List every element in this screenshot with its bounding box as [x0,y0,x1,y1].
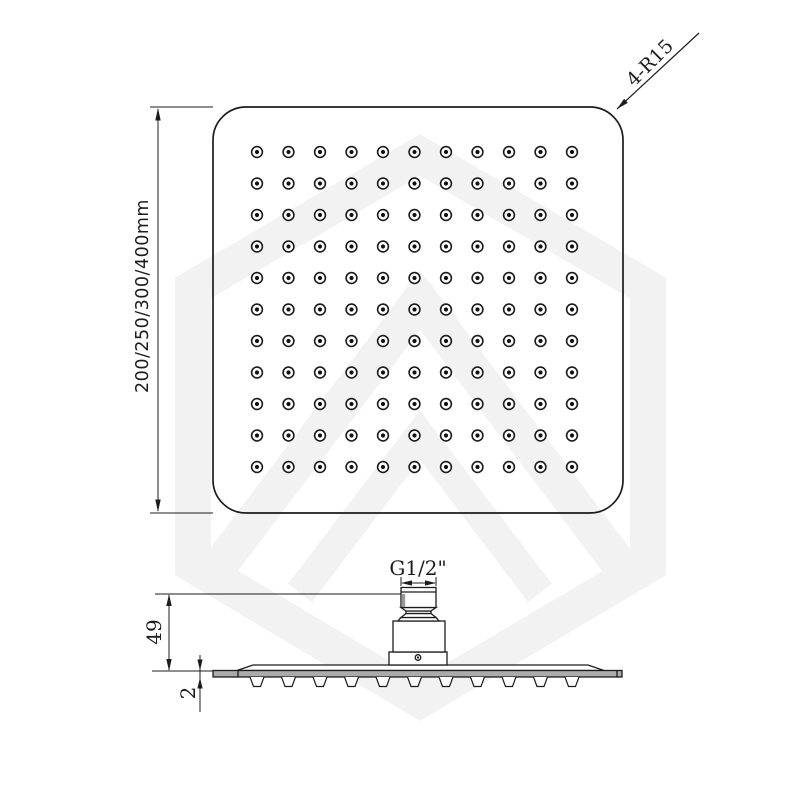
nozzle-dot [349,307,353,311]
nozzle-dot [318,276,322,280]
nozzle-dot [381,402,385,406]
nozzle-dot [255,465,259,469]
nozzle-dot [538,276,542,280]
nozzle-dot [349,181,353,185]
arrowhead-down-icon [166,659,171,671]
nozzle-dot [381,370,385,374]
nozzle-tips [250,677,579,687]
nozzle-dot [318,181,322,185]
nozzle-dot [475,244,479,248]
nozzle-tip [313,677,327,687]
thread-shading [402,594,405,607]
nozzle-dot [475,307,479,311]
nozzle-dot [255,181,259,185]
thread-pipe [401,588,436,608]
nozzle-dot [444,244,448,248]
nozzle-dot [570,307,574,311]
nozzle-dot [286,150,290,154]
nozzle-dot [412,150,416,154]
nozzle-dot [349,402,353,406]
nozzle-dot [507,307,511,311]
corner-radius-label: 4-R15 [622,35,678,91]
nozzle-dot [381,276,385,280]
nozzle-dot [286,433,290,437]
nozzle-dot [286,307,290,311]
nozzle-dot [538,370,542,374]
nozzle-dot [570,370,574,374]
arrowhead-down-icon [155,500,160,513]
nozzle-tip [502,677,516,687]
nozzle-dot [318,339,322,343]
nozzle-dot [412,433,416,437]
nozzle-dot [286,465,290,469]
nozzle-dot [349,339,353,343]
arrowhead-up-icon [155,108,160,121]
nozzle-dot [444,433,448,437]
nozzle-dot [570,465,574,469]
drawing-canvas: 200/250/300/400mm 4-R15 [0,0,800,800]
nozzle-dot [349,213,353,217]
nozzle-dot [286,276,290,280]
nozzle-dot [507,433,511,437]
nozzle-tip [534,677,548,687]
nozzle-dot [255,402,259,406]
nozzle-dot [349,150,353,154]
nozzle-tip [282,677,296,687]
nozzle-dot [318,465,322,469]
nozzle-dot [507,370,511,374]
nozzle-dot [412,465,416,469]
nozzle-dot [475,181,479,185]
nozzle-dot [255,307,259,311]
nozzle-dot [507,181,511,185]
nozzle-dot [475,150,479,154]
nozzle-dot [570,244,574,248]
nozzle-dot [318,402,322,406]
nozzle-dot [570,339,574,343]
width-dimension-label: 200/250/300/400mm [133,199,153,393]
mount-body [393,621,445,652]
thread-dimension: G1/2" [389,556,446,586]
arrowhead-left-icon [401,580,412,585]
nozzle-dot [444,307,448,311]
nozzle-dot [507,213,511,217]
nozzle-dot [444,181,448,185]
nozzle-dot [412,213,416,217]
nozzle-dot [381,339,385,343]
nozzle-dot [286,370,290,374]
technical-drawing: 200/250/300/400mm 4-R15 [0,0,800,800]
nozzle-dot [349,433,353,437]
nozzle-tip [250,677,264,687]
nozzle-dot [286,402,290,406]
nozzle-dot [412,244,416,248]
thickness-dimension: 2 [176,655,203,712]
arrowhead-up-icon [166,594,171,606]
nozzle-dot [349,465,353,469]
nozzle-dot [444,339,448,343]
nozzle-dot [255,244,259,248]
nozzle-dot [255,276,259,280]
thread-label: G1/2" [389,556,446,580]
nozzle-dot [412,276,416,280]
nozzle-dot [444,370,448,374]
plate-top-bevel [237,665,604,671]
nozzle-dot [286,213,290,217]
nozzle-dot [444,402,448,406]
nozzle-dot [286,181,290,185]
nozzle-dot [507,339,511,343]
nozzle-dot [318,370,322,374]
height-dimension-label: 49 [142,619,166,644]
nozzle-dot [538,339,542,343]
arrowhead-right-icon [425,580,436,585]
nozzle-dot [538,433,542,437]
nozzle-dot [444,465,448,469]
plate-bar [213,671,622,678]
nozzle-dot [349,276,353,280]
mount-screw-dot [417,656,419,658]
nozzle-dot [538,402,542,406]
nozzle-dot [507,150,511,154]
nozzle-dot [570,276,574,280]
nozzle-dot [444,213,448,217]
nozzle-dot [475,276,479,280]
nozzle-dot [255,213,259,217]
nozzle-dot [381,213,385,217]
nozzle-dot [475,433,479,437]
nozzle-dot [318,307,322,311]
nozzle-dot [570,402,574,406]
nozzle-dot [412,181,416,185]
nozzle-dot [444,150,448,154]
nozzle-dot [507,402,511,406]
nozzle-dot [444,276,448,280]
nozzle-dot [286,339,290,343]
nozzle-dot [381,181,385,185]
nozzle-dot [255,150,259,154]
nozzle-dot [318,150,322,154]
corner-radius-leader: 4-R15 [617,33,699,109]
nozzle-tip [565,677,579,687]
nozzle-dot [538,213,542,217]
nozzle-dot [381,465,385,469]
nozzle-dot [570,150,574,154]
nozzle-dot [349,370,353,374]
nozzle-dot [538,307,542,311]
nozzle-dot [475,370,479,374]
nozzle-dot [538,181,542,185]
nozzle-dot [255,370,259,374]
nozzle-dot [381,244,385,248]
nozzle-dot [507,465,511,469]
nozzle-dot [255,339,259,343]
nozzle-dot [570,213,574,217]
nozzle-dot [318,244,322,248]
nozzle-dot [538,150,542,154]
nozzle-dot [475,402,479,406]
nozzle-dot [507,244,511,248]
nozzle-dot [538,465,542,469]
nozzle-dot [412,402,416,406]
nozzle-dot [286,244,290,248]
nozzle-dot [475,339,479,343]
nozzle-dot [381,433,385,437]
nozzle-dot [349,244,353,248]
nozzle-dot [381,150,385,154]
nozzle-dot [412,339,416,343]
nozzle-dot [570,433,574,437]
nozzle-dot [318,433,322,437]
nozzle-dot [255,433,259,437]
nozzle-dot [318,213,322,217]
nozzle-dot [507,276,511,280]
nozzle-dot [475,465,479,469]
nozzle-dot [570,181,574,185]
nozzle-dot [412,307,416,311]
arrowhead-down-icon [197,660,202,671]
nozzle-dot [412,370,416,374]
nozzle-dot [475,213,479,217]
thickness-dimension-label: 2 [176,687,200,700]
nozzle-tip [345,677,359,687]
nozzle-dot [381,307,385,311]
nozzle-dot [538,244,542,248]
